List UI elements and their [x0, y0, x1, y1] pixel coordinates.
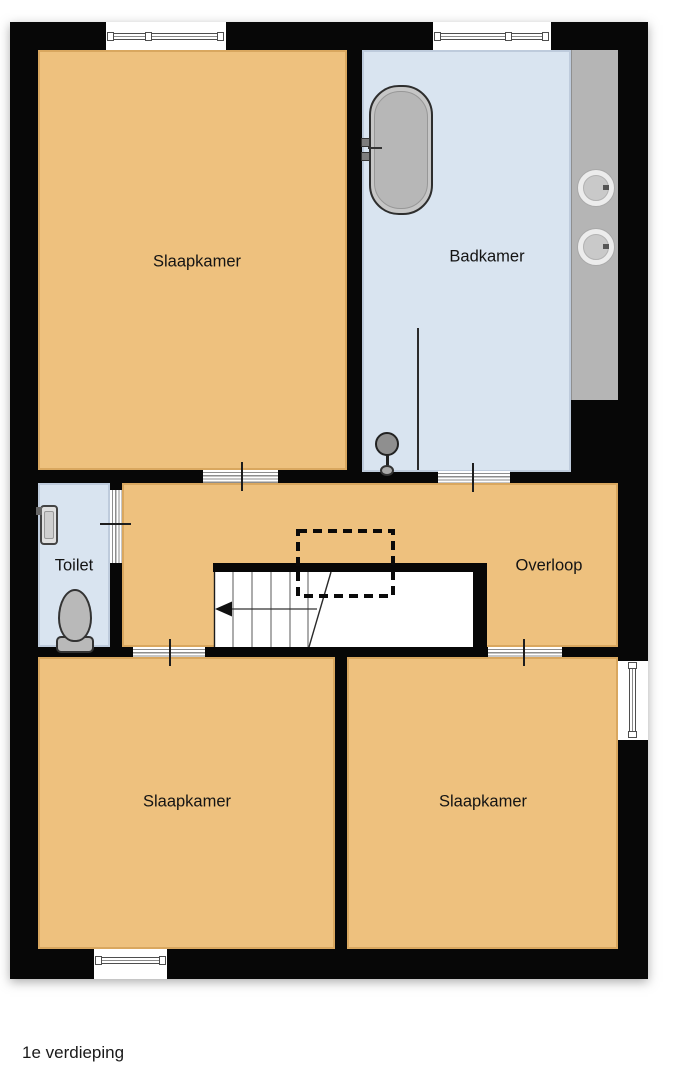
door-tick	[169, 639, 171, 666]
hand-basin-inner	[44, 511, 54, 539]
door-tick	[241, 462, 243, 491]
door-opening-badkamer	[438, 471, 510, 483]
door-tick	[523, 639, 525, 666]
room-label: Slaapkamer	[439, 793, 527, 812]
room-label: Toilet	[55, 557, 94, 576]
bathtub-spout	[368, 147, 382, 149]
washbasin-tap-icon	[603, 244, 609, 249]
hand-basin-tap-icon	[36, 507, 42, 515]
shower-screen	[417, 328, 419, 470]
washbasin-tap-icon	[603, 185, 609, 190]
shower-base	[380, 465, 394, 476]
room-label: Slaapkamer	[143, 793, 231, 812]
toilet-icon	[58, 589, 92, 642]
floorplan-page: Slaapkamer Badkamer Toilet Overloop Slaa…	[0, 0, 683, 1080]
bathtub-inner	[374, 91, 428, 209]
door-tick	[472, 463, 474, 492]
room-label: Overloop	[516, 557, 583, 576]
bathtub-faucet-icon	[361, 138, 370, 147]
door-opening-slaapkamer-bottom-right	[488, 647, 562, 657]
bathtub-faucet-icon	[361, 152, 370, 161]
room-label: Slaapkamer	[153, 253, 241, 272]
room-label: Badkamer	[449, 248, 524, 267]
shower-head-icon	[375, 432, 399, 456]
window-bottom	[94, 949, 167, 979]
door-tick	[100, 523, 131, 525]
door-opening-toilet	[110, 490, 122, 563]
floor-caption: 1e verdieping	[22, 1043, 124, 1063]
staircase-icon	[205, 525, 495, 660]
vanity-counter	[571, 50, 618, 400]
